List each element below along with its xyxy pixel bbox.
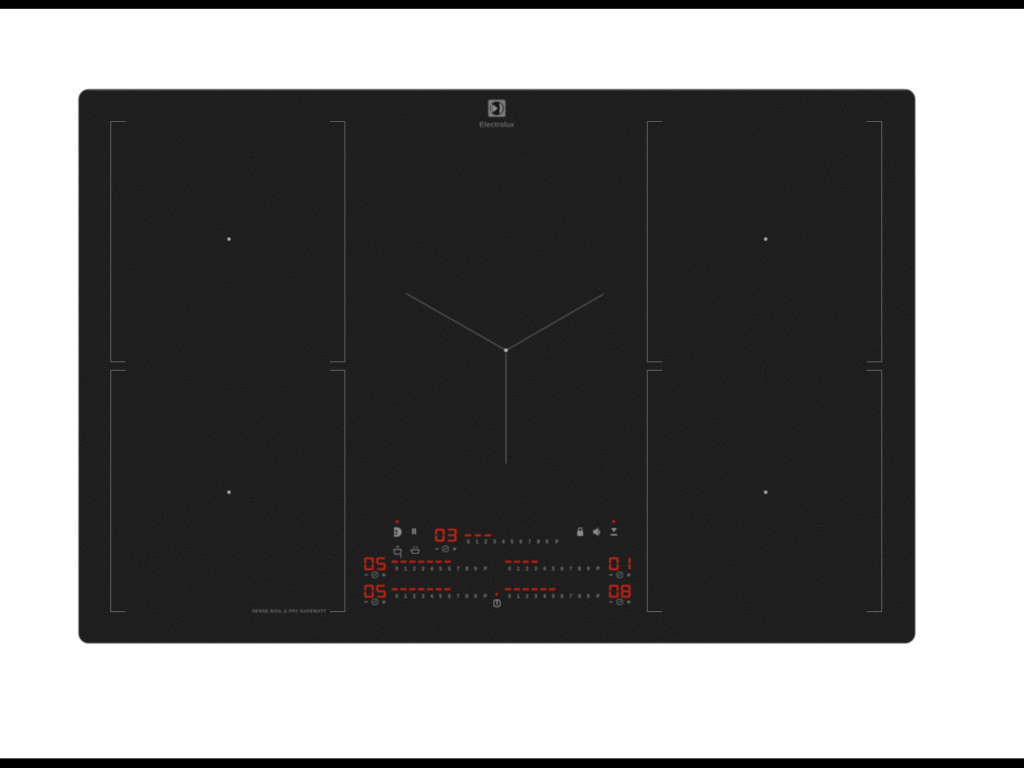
svg-text:Electrolux: Electrolux [479, 120, 514, 129]
svg-text:SENSE BOIL & FRY SAFEMATT: SENSE BOIL & FRY SAFEMATT [252, 609, 327, 614]
